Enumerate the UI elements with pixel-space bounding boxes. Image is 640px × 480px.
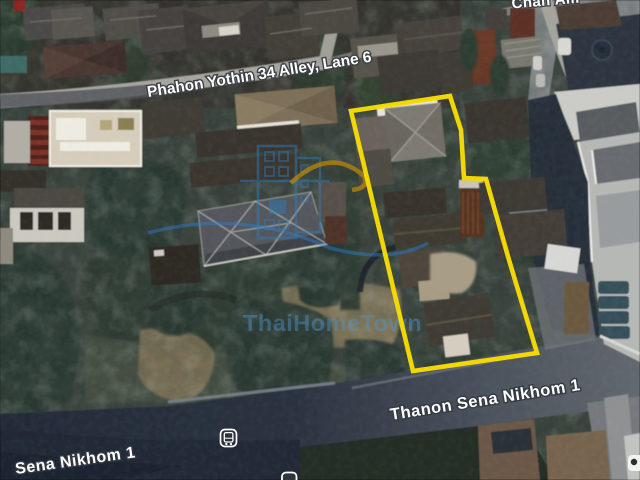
svg-text:ThaiHomeTown: ThaiHomeTown <box>243 310 422 336</box>
